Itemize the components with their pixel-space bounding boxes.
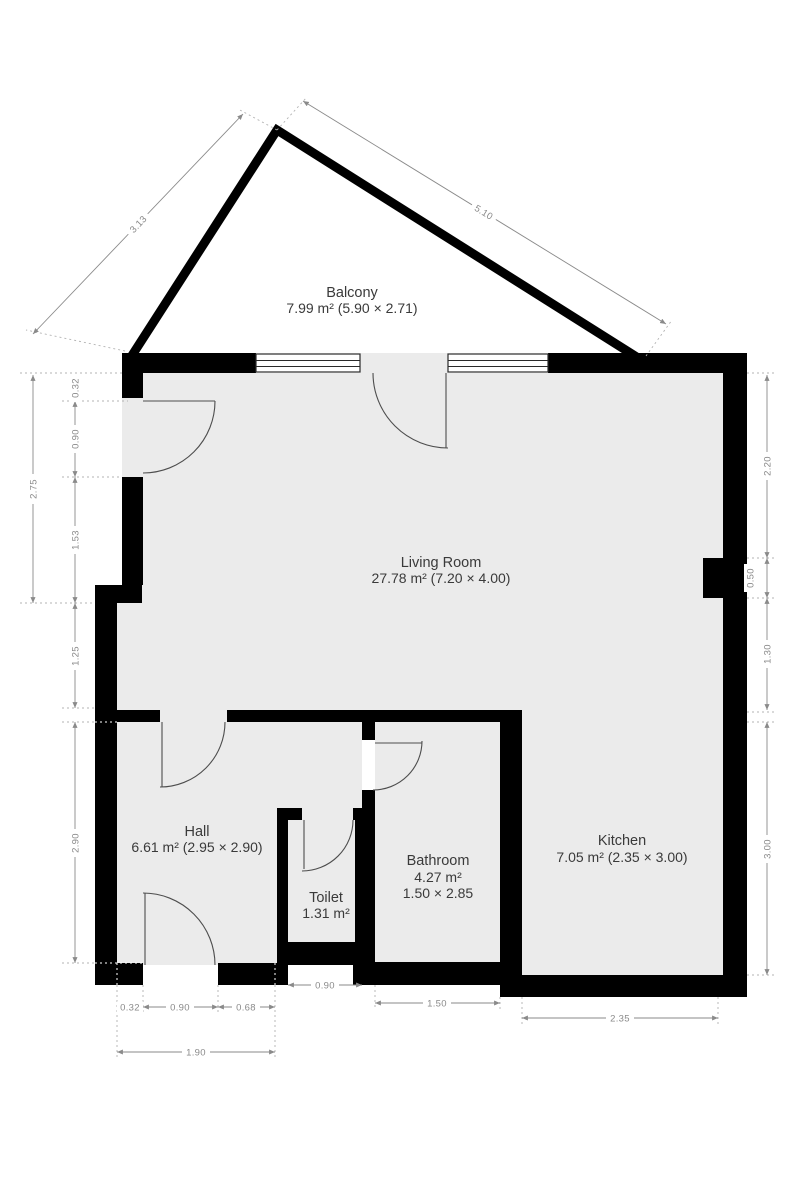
dim-label-bottom-toilet: 0.90 bbox=[311, 980, 339, 992]
svg-text:2.90: 2.90 bbox=[71, 833, 82, 853]
room-label-kitchen: Kitchen bbox=[598, 833, 646, 849]
wall-bottom-hall-left bbox=[95, 963, 143, 985]
svg-text:0.90: 0.90 bbox=[315, 981, 335, 992]
dim-label-bottom-c: 0.68 bbox=[232, 1002, 260, 1014]
wall-toilet-bathroom bbox=[355, 820, 375, 965]
entry-door-threshold bbox=[128, 398, 142, 477]
dim-label-bottom-kitchen: 2.35 bbox=[606, 1013, 634, 1025]
svg-text:0.50: 0.50 bbox=[746, 568, 757, 588]
room-label-bathroom: Bathroom bbox=[407, 853, 470, 869]
dim-label-balcony-left: 3.13 bbox=[124, 210, 152, 239]
svg-text:0.90: 0.90 bbox=[170, 1003, 190, 1014]
svg-text:0.32: 0.32 bbox=[71, 378, 82, 398]
wall-balcony-parapet bbox=[131, 130, 643, 361]
dim-label-balcony-right: 5.10 bbox=[469, 200, 499, 225]
room-label-hall: Hall bbox=[185, 824, 210, 840]
room-area-balcony: 7.99 m² (5.90 × 2.71) bbox=[286, 300, 417, 316]
window-living-left bbox=[256, 354, 360, 372]
svg-text:0.68: 0.68 bbox=[236, 1003, 256, 1014]
room-area-toilet: 1.31 m² bbox=[302, 905, 350, 921]
room-bathroom-floor bbox=[375, 713, 500, 962]
wall-bottom-hall-right bbox=[218, 963, 278, 985]
dim-label-left-d: 1.25 bbox=[69, 642, 82, 670]
svg-text:1.30: 1.30 bbox=[763, 644, 774, 664]
wall-bathroom-stub-bottom bbox=[362, 790, 375, 808]
wall-toilet-left bbox=[277, 820, 288, 965]
wall-hall-divider-right bbox=[227, 710, 522, 722]
room-dims-bathroom: 1.50 × 2.85 bbox=[403, 885, 474, 901]
wall-left-upper bbox=[122, 353, 143, 398]
dim-label-right-a: 2.20 bbox=[761, 452, 774, 480]
wall-toilet-top-left bbox=[277, 808, 302, 820]
svg-text:1.53: 1.53 bbox=[71, 530, 82, 550]
wall-bottom-toilet-stub-right bbox=[353, 965, 367, 985]
wall-kitchen-bathroom bbox=[500, 710, 522, 997]
svg-text:1.90: 1.90 bbox=[186, 1048, 206, 1059]
floorplan-canvas: 2.75 0.32 0.90 1.53 1.25 2.90 2.20 0.50 … bbox=[0, 0, 800, 1200]
wall-bottom-toilet bbox=[278, 942, 367, 965]
wall-hall-divider-left bbox=[95, 710, 160, 722]
dim-label-bottom-total: 1.90 bbox=[182, 1047, 210, 1059]
dim-label-bottom-a: 0.32 bbox=[117, 1002, 143, 1014]
dim-label-right-d: 3.00 bbox=[761, 835, 774, 863]
wall-bathroom-stub-top bbox=[362, 722, 375, 740]
dim-label-right-b: 0.50 bbox=[744, 564, 757, 592]
dim-label-bottom-bathroom: 1.50 bbox=[423, 998, 451, 1010]
svg-text:1.25: 1.25 bbox=[71, 646, 82, 666]
dim-label-left-a: 0.32 bbox=[69, 374, 82, 402]
dim-label-right-c: 1.30 bbox=[761, 640, 774, 668]
room-area-kitchen: 7.05 m² (2.35 × 3.00) bbox=[556, 849, 687, 865]
room-living-floor bbox=[122, 373, 723, 713]
wall-left-step bbox=[95, 585, 142, 603]
svg-text:3.00: 3.00 bbox=[763, 839, 774, 859]
room-label-toilet: Toilet bbox=[309, 890, 343, 906]
wall-left-lower bbox=[95, 603, 117, 985]
dim-label-left-b: 0.90 bbox=[69, 425, 82, 453]
wall-left-middle bbox=[122, 477, 143, 585]
wall-right bbox=[723, 353, 747, 997]
svg-text:0.32: 0.32 bbox=[120, 1003, 140, 1014]
svg-text:2.75: 2.75 bbox=[29, 479, 40, 499]
dim-label-left-total: 2.75 bbox=[27, 474, 40, 504]
wall-right-pillar bbox=[703, 558, 723, 598]
room-area-bathroom: 4.27 m² bbox=[414, 869, 462, 885]
dim-label-left-e: 2.90 bbox=[69, 829, 82, 857]
room-area-hall: 6.61 m² (2.95 × 2.90) bbox=[131, 839, 262, 855]
wall-bottom-bathroom bbox=[367, 962, 500, 985]
svg-text:2.20: 2.20 bbox=[763, 456, 774, 476]
balcony-door-threshold bbox=[360, 353, 448, 373]
wall-bottom-kitchen bbox=[500, 975, 747, 997]
dim-label-left-c: 1.53 bbox=[69, 526, 82, 554]
room-living-floor-left-strip bbox=[117, 603, 127, 713]
floorplan-page: 2.75 0.32 0.90 1.53 1.25 2.90 2.20 0.50 … bbox=[0, 0, 800, 1200]
room-label-living: Living Room bbox=[401, 555, 482, 571]
wall-bottom-toilet-stub-left bbox=[278, 965, 288, 985]
window-living-right bbox=[448, 354, 548, 372]
room-label-balcony: Balcony bbox=[326, 285, 378, 301]
wall-toilet-top-right bbox=[353, 808, 375, 820]
wall-top-right-segment bbox=[548, 353, 747, 373]
dim-label-bottom-b: 0.90 bbox=[166, 1002, 194, 1014]
svg-text:0.90: 0.90 bbox=[71, 429, 82, 449]
svg-text:1.50: 1.50 bbox=[427, 999, 447, 1010]
svg-text:2.35: 2.35 bbox=[610, 1014, 630, 1025]
room-area-living: 27.78 m² (7.20 × 4.00) bbox=[372, 570, 511, 586]
